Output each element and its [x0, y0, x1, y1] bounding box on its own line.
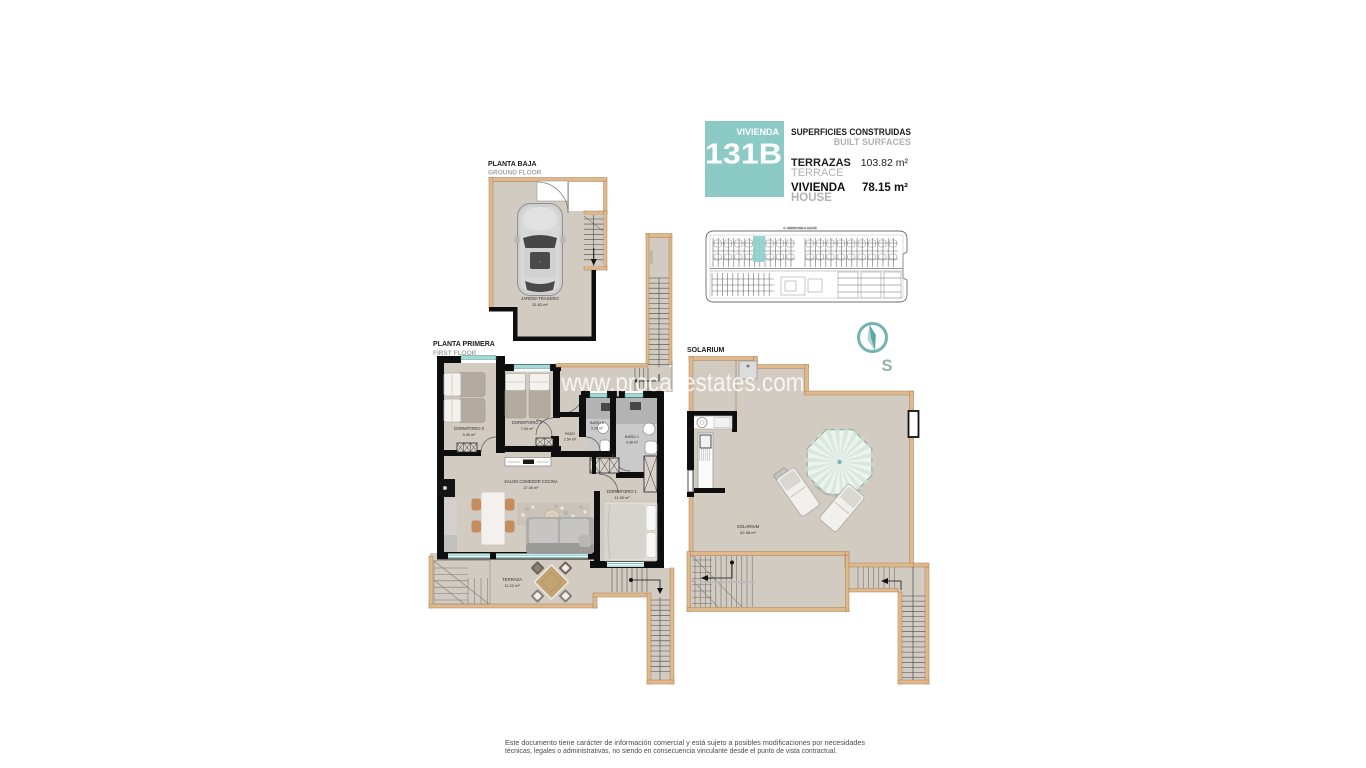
- svg-text:GROUND FLOOR: GROUND FLOOR: [488, 170, 542, 177]
- svg-text:DORMITORIO 1: DORMITORIO 1: [607, 489, 638, 494]
- svg-text:TERRACE: TERRACE: [791, 167, 844, 179]
- svg-text:27.06 m²: 27.06 m²: [524, 486, 540, 490]
- svg-text:31.82 m²: 31.82 m²: [532, 302, 548, 307]
- svg-text:PLANTA BAJA: PLANTA BAJA: [488, 161, 537, 168]
- svg-text:SOLARIUM: SOLARIUM: [687, 347, 725, 354]
- svg-text:C. BENIDORM A CALPE: C. BENIDORM A CALPE: [783, 226, 816, 230]
- svg-text:131B: 131B: [705, 139, 782, 171]
- svg-text:DORMITORIO 3: DORMITORIO 3: [454, 426, 485, 431]
- svg-text:BAÑO 1: BAÑO 1: [625, 434, 639, 439]
- svg-text:VIVIENDA: VIVIENDA: [736, 127, 779, 137]
- svg-text:11.95 m²: 11.95 m²: [615, 496, 630, 500]
- svg-text:78.15 m²: 78.15 m²: [862, 182, 908, 194]
- svg-text:62.38 m²: 62.38 m²: [740, 530, 756, 535]
- svg-text:3.20 m²: 3.20 m²: [591, 427, 604, 431]
- svg-text:S: S: [881, 357, 892, 375]
- svg-text:PLANTA PRIMERA: PLANTA PRIMERA: [433, 341, 495, 348]
- svg-text:2.54 m²: 2.54 m²: [564, 438, 577, 442]
- svg-text:103.82 m²: 103.82 m²: [861, 157, 909, 169]
- svg-text:PASO: PASO: [565, 432, 575, 436]
- svg-text:HOUSE: HOUSE: [791, 192, 832, 204]
- svg-text:JARDIN-TRASERO: JARDIN-TRASERO: [521, 296, 559, 301]
- svg-text:www.procasestates.com: www.procasestates.com: [561, 367, 805, 397]
- svg-text:11.22 m²: 11.22 m²: [504, 583, 520, 588]
- svg-text:SUPERFICIES CONSTRUIDAS: SUPERFICIES CONSTRUIDAS: [791, 127, 911, 137]
- svg-text:SOLARIUM: SOLARIUM: [737, 524, 760, 529]
- svg-text:9.49 m²: 9.49 m²: [463, 433, 477, 437]
- svg-text:7.00 m²: 7.00 m²: [521, 427, 535, 431]
- svg-text:BUILT SURFACES: BUILT SURFACES: [834, 137, 911, 147]
- svg-text:técnicas, legales o administra: técnicas, legales o administrativas, no …: [505, 748, 837, 755]
- svg-text:4.08 m²: 4.08 m²: [626, 441, 639, 445]
- svg-text:BAÑO 2: BAÑO 2: [590, 420, 604, 425]
- svg-text:SALON COMEDOR COCINA: SALON COMEDOR COCINA: [504, 479, 558, 484]
- svg-text:TERRAZA: TERRAZA: [502, 577, 522, 582]
- svg-text:Este documento tiene carácter: Este documento tiene carácter de informa…: [505, 740, 866, 747]
- svg-text:DORMITORIO 2: DORMITORIO 2: [512, 420, 543, 425]
